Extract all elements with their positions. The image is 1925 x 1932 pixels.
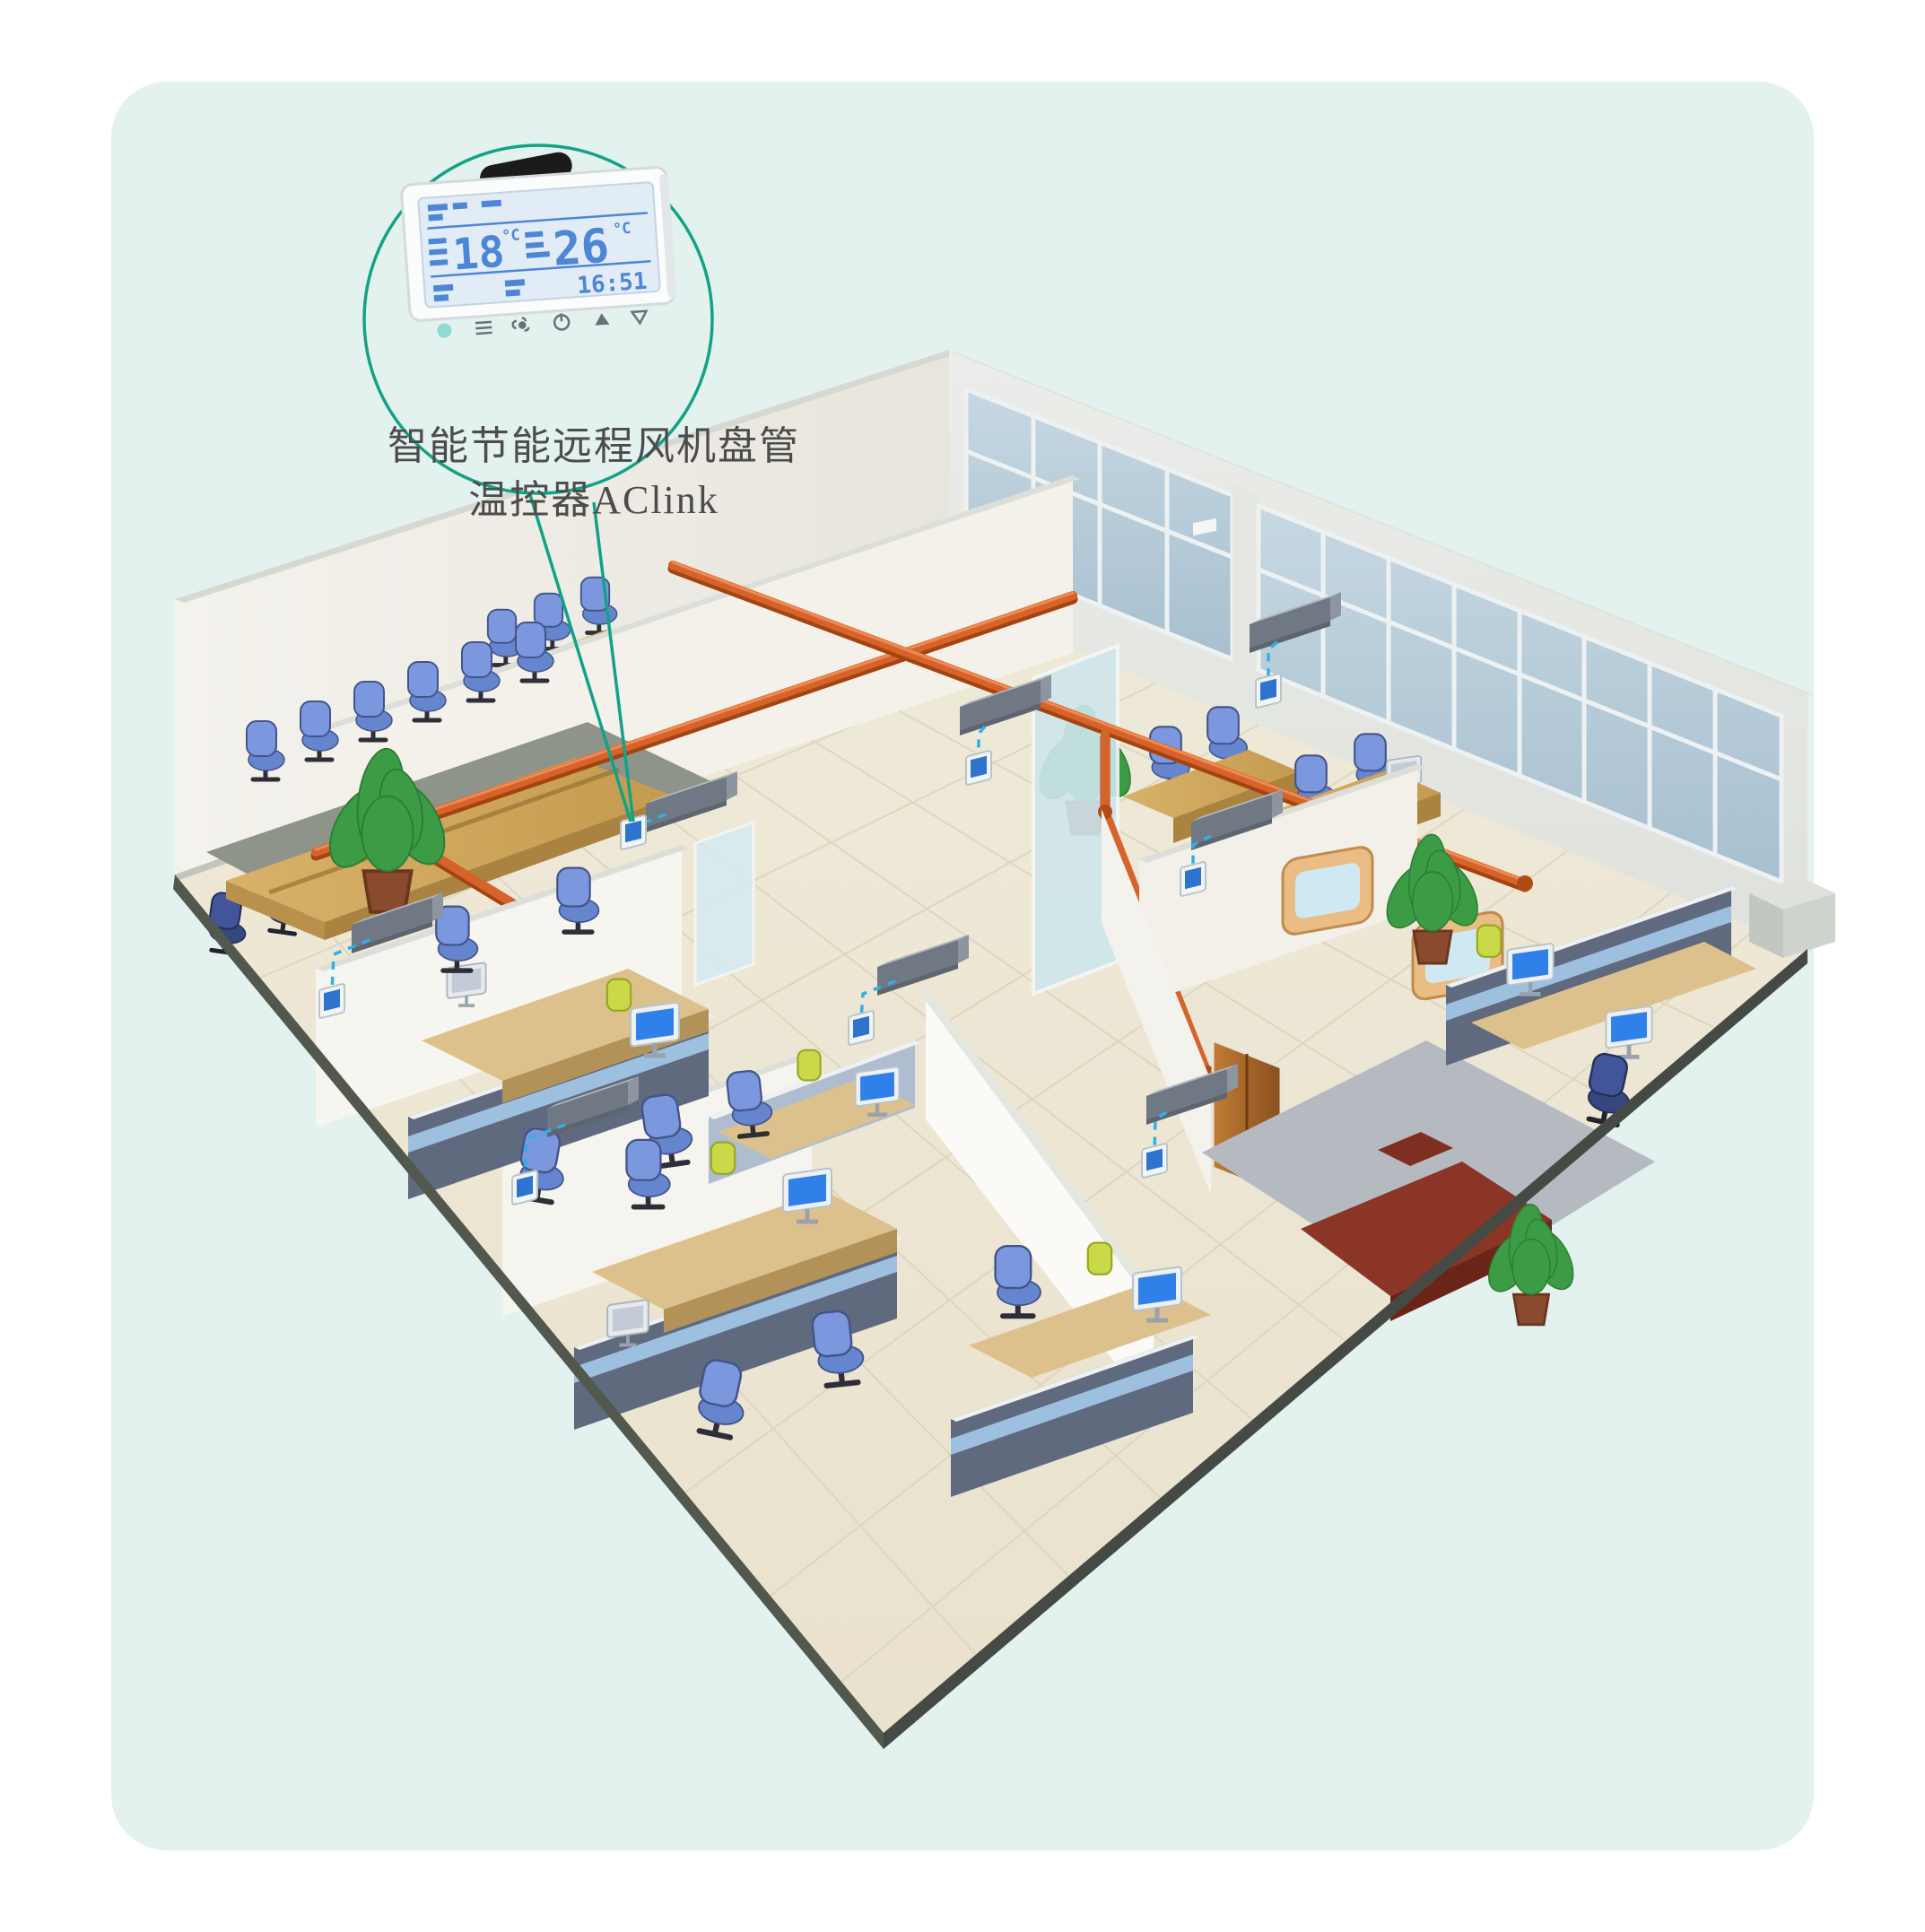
accent-chair: [1477, 926, 1501, 957]
set-temp-unit: °C: [612, 220, 632, 239]
accent-chair: [1088, 1243, 1111, 1275]
glass-panel: [695, 822, 753, 985]
wall-thermostat: [1142, 1144, 1167, 1179]
page: 18 °C 26 °C 16:51: [0, 0, 1925, 1932]
wall-thermostat: [849, 1011, 874, 1046]
accent-chair: [607, 979, 631, 1011]
time-value: 16:51: [576, 268, 648, 300]
accent-chair: [797, 1050, 820, 1081]
wall-thermostat: [1180, 862, 1206, 897]
wall-thermostat: [319, 984, 344, 1019]
room-temp-unit: °C: [501, 226, 521, 245]
wall-thermostat: [966, 751, 991, 786]
illustration-canvas: 18 °C 26 °C 16:51: [0, 0, 1925, 1932]
wall-thermostat: [512, 1171, 537, 1205]
wall-pillar: [1233, 484, 1259, 682]
callout-label-line1: 智能节能远程风机盘管: [388, 424, 800, 468]
wall-thermostat: [1256, 674, 1281, 709]
accent-chair: [711, 1143, 735, 1174]
set-temp-value: 26: [551, 220, 611, 277]
callout-label-line2: 温控器AClink: [468, 478, 719, 522]
armchair: [1283, 845, 1372, 936]
room-temp-value: 18: [451, 227, 507, 281]
